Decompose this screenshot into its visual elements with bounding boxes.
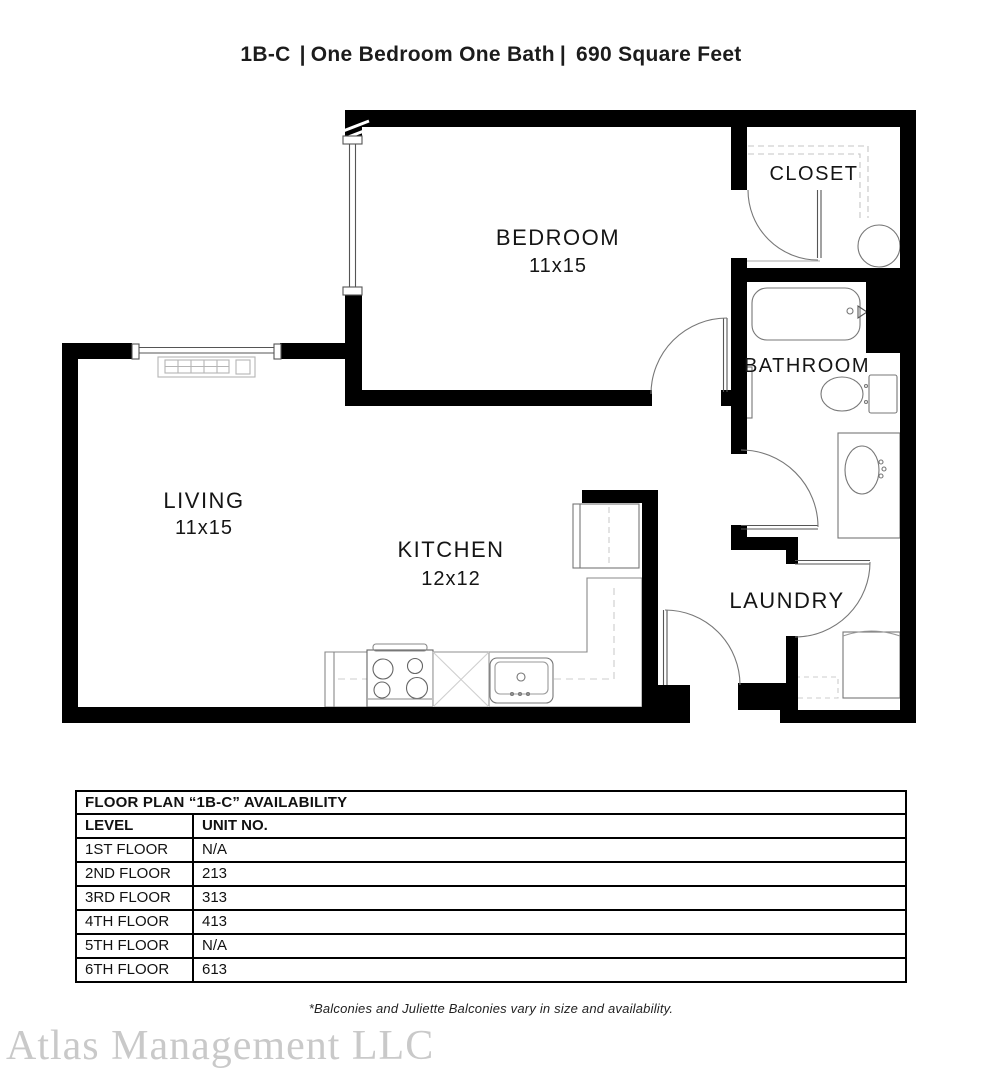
unit-cell: 413 bbox=[194, 911, 905, 933]
unit-cell: 313 bbox=[194, 887, 905, 909]
bathroom-label: BATHROOM bbox=[744, 355, 870, 377]
wall-left bbox=[62, 343, 78, 723]
wall-kitchen-right bbox=[642, 490, 658, 707]
column-header-level: LEVEL bbox=[77, 815, 194, 837]
living-size: 11x15 bbox=[175, 517, 233, 539]
table-row: 1ST FLOOR N/A bbox=[77, 839, 905, 863]
kitchen-label: KITCHEN bbox=[397, 537, 504, 562]
unit-cell: 213 bbox=[194, 863, 905, 885]
availability-table: FLOOR PLAN “1B-C” AVAILABILITY LEVEL UNI… bbox=[75, 790, 907, 983]
walls bbox=[62, 110, 916, 723]
bathtub bbox=[752, 288, 867, 340]
table-row: 6TH FLOOR 613 bbox=[77, 959, 905, 981]
wall-right bbox=[900, 110, 916, 723]
wall-entry-step bbox=[642, 685, 690, 710]
table-row: 3RD FLOOR 313 bbox=[77, 887, 905, 911]
company-watermark: Atlas Management LLC bbox=[6, 1022, 434, 1070]
level-cell: 5TH FLOOR bbox=[77, 935, 194, 957]
washer-dryer bbox=[843, 631, 900, 698]
stove bbox=[367, 644, 433, 707]
wall-entry-corner bbox=[738, 683, 798, 710]
kitchen-sink bbox=[490, 658, 553, 703]
availability-table-title: FLOOR PLAN “1B-C” AVAILABILITY bbox=[77, 792, 905, 815]
bedroom-door bbox=[651, 318, 727, 394]
windows bbox=[132, 136, 362, 359]
kitchen-size: 12x12 bbox=[421, 568, 481, 590]
table-row: 4TH FLOOR 413 bbox=[77, 911, 905, 935]
balcony-footnote: *Balconies and Juliette Balconies vary i… bbox=[0, 1001, 982, 1016]
baseboard-heater bbox=[158, 357, 255, 377]
level-cell: 3RD FLOOR bbox=[77, 887, 194, 909]
closet-label: CLOSET bbox=[769, 163, 858, 185]
level-cell: 2ND FLOOR bbox=[77, 863, 194, 885]
table-row: 2ND FLOOR 213 bbox=[77, 863, 905, 887]
wall-closet-bathroom-divider bbox=[731, 268, 905, 282]
wall-top bbox=[345, 110, 916, 127]
level-cell: 6TH FLOOR bbox=[77, 959, 194, 981]
column-header-unit: UNIT NO. bbox=[194, 815, 905, 837]
living-label: LIVING bbox=[163, 488, 244, 513]
level-cell: 1ST FLOOR bbox=[77, 839, 194, 861]
unit-cell: 613 bbox=[194, 959, 905, 981]
wall-tub-block bbox=[866, 282, 902, 353]
refrigerator bbox=[573, 504, 639, 568]
level-cell: 4TH FLOOR bbox=[77, 911, 194, 933]
bedroom-label: BEDROOM bbox=[496, 225, 620, 250]
bathroom-sink-vanity bbox=[838, 433, 900, 538]
bathroom-door bbox=[741, 450, 818, 529]
floor-plan-flyer: 1B-C|One Bedroom One Bath|690 Square Fee… bbox=[0, 0, 982, 1080]
table-header-row: LEVEL UNIT NO. bbox=[77, 815, 905, 839]
bedroom-size: 11x15 bbox=[529, 255, 587, 277]
wall-closet-divider-upper bbox=[731, 110, 747, 190]
water-heater bbox=[858, 225, 900, 267]
dishwasher bbox=[433, 652, 489, 707]
wall-bedroom-bottom bbox=[345, 390, 652, 406]
toilet bbox=[821, 375, 897, 413]
closet-door bbox=[748, 190, 821, 260]
wall-living-top-right bbox=[280, 343, 345, 359]
table-row: 5TH FLOOR N/A bbox=[77, 935, 905, 959]
wall-bedroom-left-lower bbox=[345, 287, 362, 406]
dashed-appliance-outline bbox=[795, 677, 838, 698]
unit-cell: N/A bbox=[194, 935, 905, 957]
wall-bottom bbox=[62, 707, 690, 723]
wall-laundry-bottom bbox=[780, 710, 916, 723]
entry-door bbox=[664, 610, 741, 685]
wall-fridge-top bbox=[582, 490, 658, 503]
bedroom-window bbox=[343, 136, 362, 295]
unit-cell: N/A bbox=[194, 839, 905, 861]
laundry-label: LAUNDRY bbox=[729, 588, 844, 613]
